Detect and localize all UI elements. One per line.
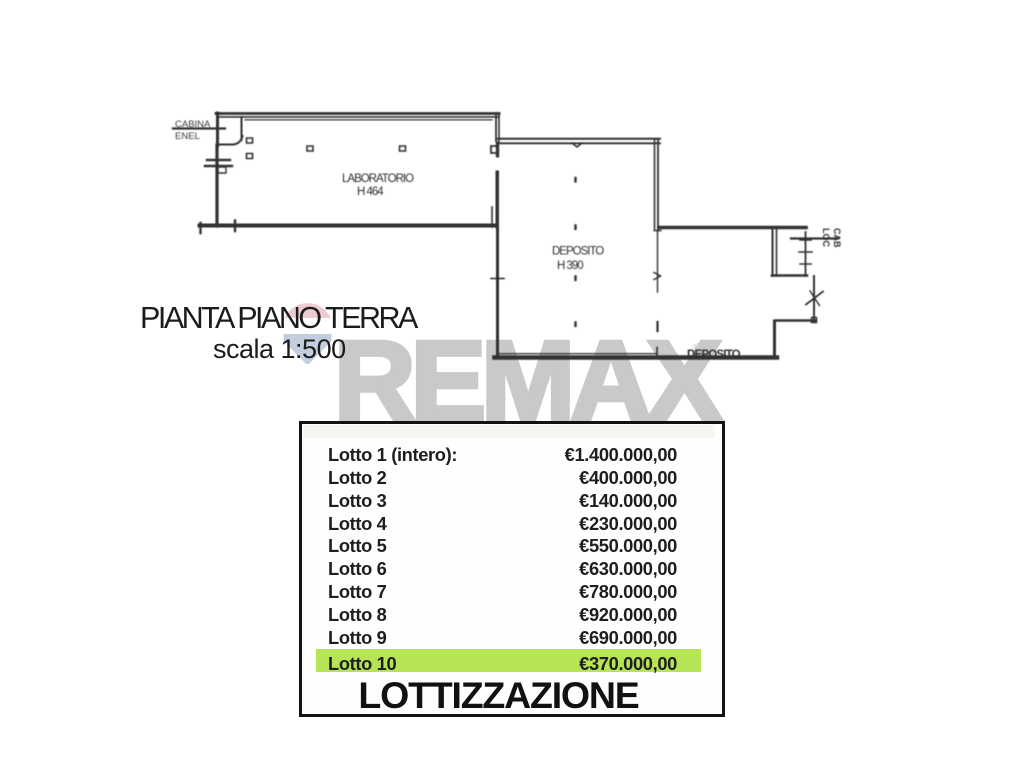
svg-text:LOC: LOC	[821, 228, 831, 247]
svg-text:DEPOSITO: DEPOSITO	[552, 246, 604, 258]
svg-text:LABORATORIO: LABORATORIO	[342, 173, 414, 185]
svg-text:CAB: CAB	[832, 228, 842, 248]
svg-text:DEPOSITO: DEPOSITO	[687, 349, 741, 361]
svg-text:ENEL: ENEL	[175, 131, 200, 142]
svg-text:H 464: H 464	[357, 186, 384, 198]
svg-text:H 390: H 390	[557, 260, 583, 272]
